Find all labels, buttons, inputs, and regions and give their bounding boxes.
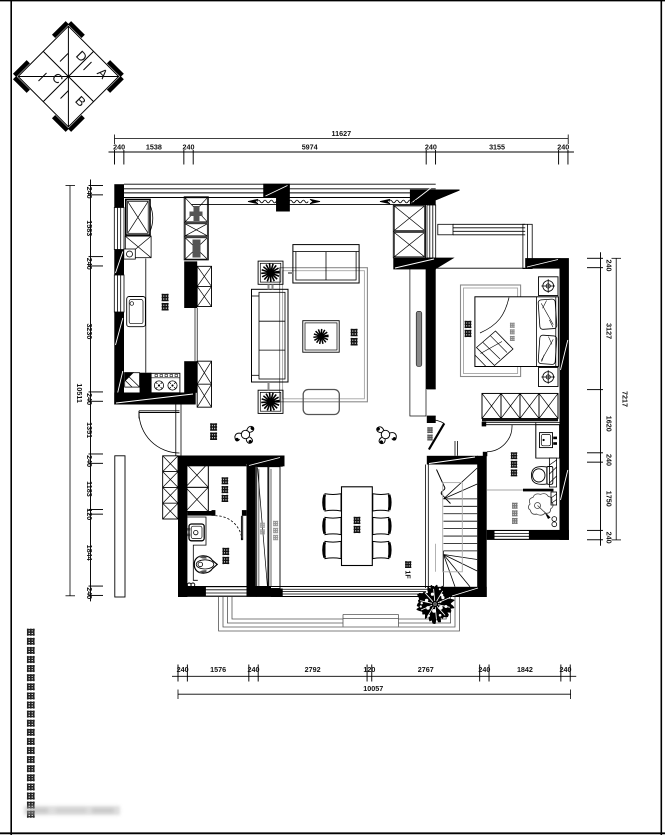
- svg-text:240: 240: [85, 455, 94, 467]
- svg-text:1538: 1538: [146, 142, 162, 151]
- svg-text:1351: 1351: [85, 422, 94, 438]
- svg-text:3127: 3127: [605, 323, 614, 339]
- svg-text:240: 240: [560, 665, 572, 674]
- svg-text:240: 240: [177, 665, 189, 674]
- svg-text:1844: 1844: [85, 545, 94, 561]
- svg-text:2792: 2792: [305, 665, 321, 674]
- svg-text:1620: 1620: [605, 416, 614, 432]
- svg-text:240: 240: [605, 259, 614, 271]
- svg-text:10511: 10511: [75, 383, 84, 403]
- svg-text:240: 240: [557, 142, 569, 151]
- svg-text:1576: 1576: [210, 665, 226, 674]
- svg-text:1583: 1583: [85, 220, 94, 236]
- svg-text:240: 240: [425, 142, 437, 151]
- svg-text:10057: 10057: [363, 684, 383, 693]
- svg-text:1183: 1183: [85, 481, 94, 497]
- svg-text:240: 240: [85, 187, 94, 199]
- svg-text:5974: 5974: [302, 142, 318, 151]
- svg-text:120: 120: [363, 665, 375, 674]
- svg-text:7217: 7217: [621, 391, 630, 407]
- svg-text:240: 240: [183, 142, 195, 151]
- svg-text:240: 240: [85, 393, 94, 405]
- svg-text:240: 240: [113, 142, 125, 151]
- svg-text:240: 240: [605, 454, 614, 466]
- svg-text:240: 240: [478, 665, 490, 674]
- svg-text:11627: 11627: [332, 129, 352, 138]
- svg-text:1750: 1750: [605, 491, 614, 507]
- svg-text:240: 240: [605, 532, 614, 544]
- svg-text:240: 240: [85, 258, 94, 270]
- svg-text:1F: 1F: [404, 570, 411, 579]
- svg-text:1842: 1842: [517, 665, 533, 674]
- svg-text:120: 120: [85, 508, 94, 520]
- svg-text:2767: 2767: [418, 665, 434, 674]
- svg-text:3155: 3155: [489, 142, 505, 151]
- svg-text:240: 240: [85, 587, 94, 599]
- svg-text:240: 240: [248, 665, 260, 674]
- svg-text:3230: 3230: [85, 323, 94, 339]
